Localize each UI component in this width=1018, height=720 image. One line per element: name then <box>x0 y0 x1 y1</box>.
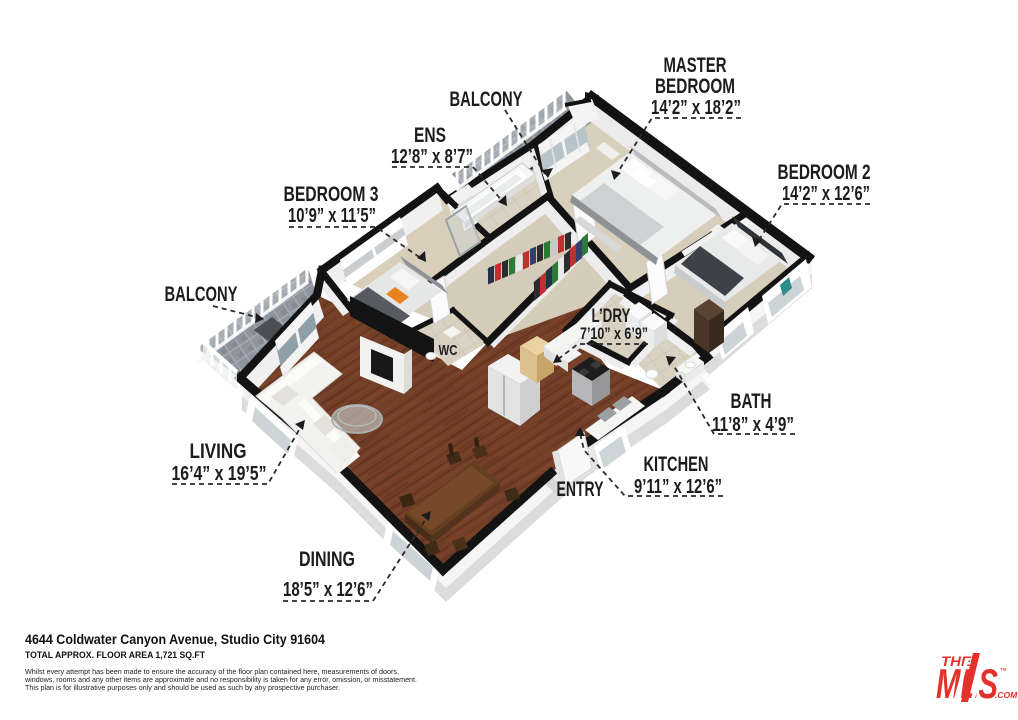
svg-text:11’8” x 4’9”: 11’8” x 4’9” <box>712 414 794 436</box>
svg-text:ENS: ENS <box>414 124 446 147</box>
svg-text:MASTER: MASTER <box>664 54 727 77</box>
svg-text:BEDROOM: BEDROOM <box>655 75 735 98</box>
svg-text:10’9” x 11’5”: 10’9” x 11’5” <box>288 205 376 227</box>
svg-text:BEDROOM 3: BEDROOM 3 <box>284 183 379 206</box>
svg-text:ENTRY: ENTRY <box>557 478 604 501</box>
svg-text:7’10” x 6’9”: 7’10” x 6’9” <box>580 324 648 343</box>
svg-text:WC: WC <box>439 342 458 359</box>
svg-text:This plan is for illustrative: This plan is for illustrative purposes o… <box>25 683 340 692</box>
svg-text:16’4” x 19’5”: 16’4” x 19’5” <box>172 463 267 485</box>
svg-text:14’2” x 12’6”: 14’2” x 12’6” <box>782 183 870 205</box>
svg-text:BATH: BATH <box>731 390 772 413</box>
svg-text:BALCONY: BALCONY <box>450 88 523 111</box>
svg-text:™: ™ <box>1000 668 1007 675</box>
svg-text:.COM: .COM <box>995 690 1018 700</box>
svg-text:KITCHEN: KITCHEN <box>644 453 709 476</box>
svg-text:12’8” x 8’7”: 12’8” x 8’7” <box>391 146 473 168</box>
svg-text:TOTAL APPROX. FLOOR AREA 1,721: TOTAL APPROX. FLOOR AREA 1,721 SQ.FT <box>25 650 205 661</box>
svg-text:LIVING: LIVING <box>190 440 247 463</box>
svg-text:BEDROOM 2: BEDROOM 2 <box>778 161 871 184</box>
svg-text:14’2” x 18’2”: 14’2” x 18’2” <box>651 97 741 119</box>
svg-text:18’5” x 12’6”: 18’5” x 12’6” <box>283 579 373 601</box>
svg-text:4644 Coldwater Canyon Avenue,: 4644 Coldwater Canyon Avenue, Studio Cit… <box>25 632 325 647</box>
svg-text:DINING: DINING <box>299 548 355 571</box>
svg-text:BALCONY: BALCONY <box>165 283 238 306</box>
svg-text:9’11” x 12’6”: 9’11” x 12’6” <box>634 476 722 498</box>
